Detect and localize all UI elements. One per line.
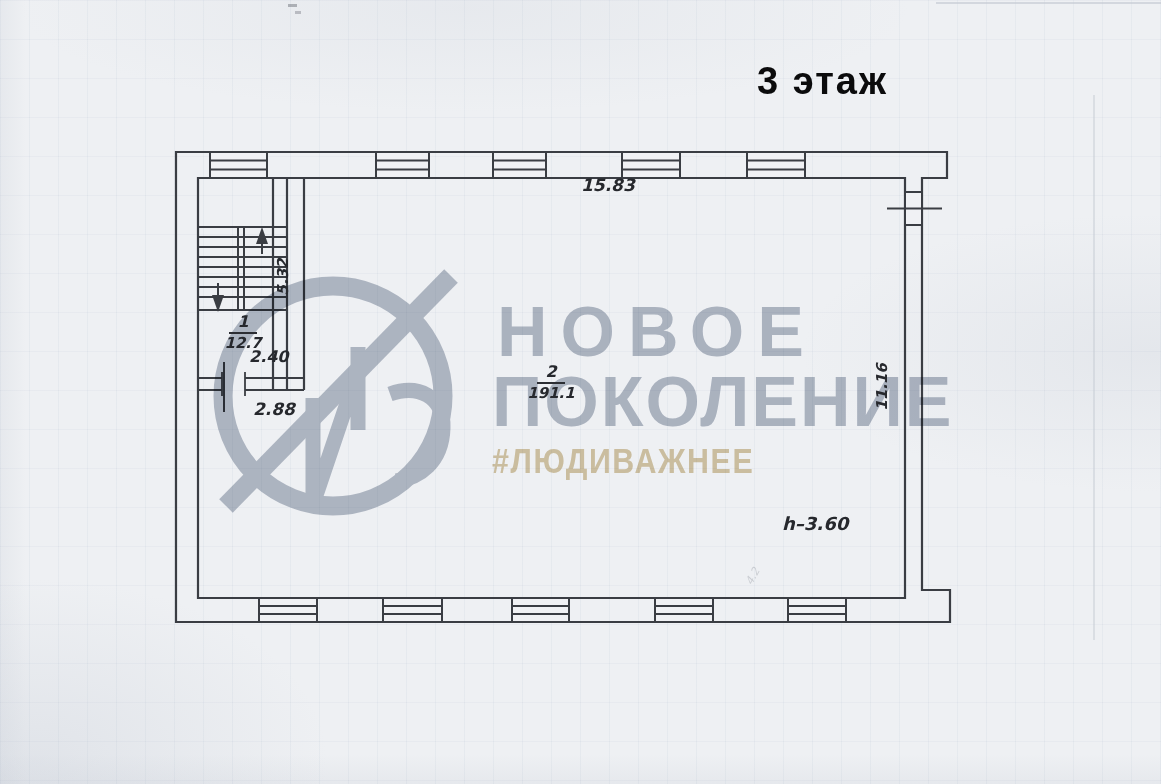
window-symbol [747,152,805,178]
dim-top-width: 15.83 [581,177,635,194]
window-symbol [210,152,267,178]
window-symbol [376,152,429,178]
page-title: 3 этаж [757,62,888,100]
room-label-2: 2 191.1 [524,364,578,401]
top-windows [210,152,805,178]
floor-plan-drawing [0,0,1161,784]
bottom-windows [259,598,846,622]
dim-stair-flight: 5.32 [276,258,291,295]
window-symbol [655,598,713,622]
room-area: 191.1 [524,384,578,401]
window-symbol [259,598,317,622]
scanned-floor-plan-page: НОВОЕ ПОКОЛЕНИЕ #ЛЮДИВАЖНЕЕ 3 этаж 15.83… [0,0,1161,784]
room-area: 12.7 [216,334,270,351]
room-number: 1 [229,314,256,334]
dim-doorway-span: 2.88 [253,401,295,418]
room-label-1: 1 12.7 [216,314,270,351]
stairs-up-arrow [256,227,268,254]
window-symbol [493,152,546,178]
window-symbol [788,598,846,622]
door-jamb-ticks [222,372,245,396]
dim-right-depth: 11.16 [875,363,890,410]
room-number: 2 [537,364,564,384]
dim-ceiling-height: h–3.60 [782,515,848,533]
window-symbol [512,598,569,622]
right-wall-opening [887,192,942,225]
window-symbol [383,598,442,622]
